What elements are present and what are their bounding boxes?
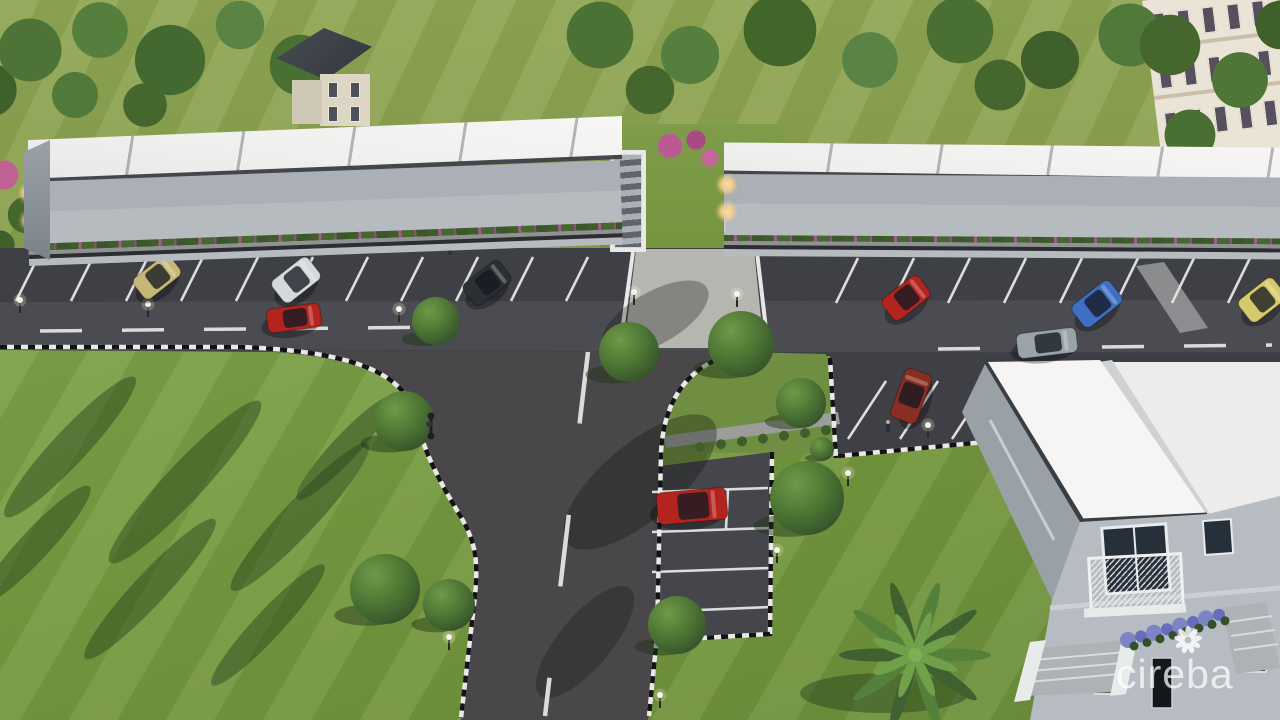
apartment-building-right xyxy=(724,134,1280,284)
car-cabin xyxy=(677,492,710,521)
porch-light xyxy=(724,209,729,214)
lamp-head xyxy=(774,547,780,553)
tree xyxy=(708,311,774,377)
corner-building-small-window xyxy=(1203,519,1233,555)
bush xyxy=(758,434,768,444)
cyclist xyxy=(426,421,432,427)
tree xyxy=(810,437,834,461)
lamp-head xyxy=(631,289,637,295)
corner-building xyxy=(962,356,1280,720)
tree xyxy=(648,596,706,654)
lamp-head xyxy=(845,470,851,476)
car-cabin xyxy=(282,307,308,328)
pink-flowering-tree xyxy=(646,124,726,176)
tree xyxy=(599,322,659,382)
green-shrub xyxy=(1130,642,1139,651)
apartment-building-left xyxy=(28,110,622,270)
bush xyxy=(695,442,705,452)
bicycle-wheel xyxy=(428,413,435,420)
bush xyxy=(779,431,789,441)
apartment-facade xyxy=(724,174,1280,259)
palm-tree xyxy=(800,581,991,720)
rendering-canvas: cireba xyxy=(0,0,1280,720)
corner-building-door xyxy=(1152,658,1172,708)
tree xyxy=(412,297,460,345)
lamp-head xyxy=(17,297,23,303)
palm-crown xyxy=(908,648,922,662)
green-shrub xyxy=(1221,616,1230,625)
tree xyxy=(423,579,475,631)
green-shrub xyxy=(1156,634,1165,643)
green-shrub xyxy=(1182,627,1191,636)
lamp-head xyxy=(925,422,931,428)
tree xyxy=(770,461,844,535)
bush xyxy=(821,425,831,435)
green-shrub xyxy=(1208,620,1217,629)
bush xyxy=(737,436,747,446)
bush xyxy=(716,439,726,449)
person xyxy=(886,424,890,433)
balcony-railing xyxy=(1089,554,1184,613)
porch-light xyxy=(724,182,729,187)
tree xyxy=(350,554,420,624)
lamp-head xyxy=(446,634,452,640)
lamp-head xyxy=(734,291,740,297)
bicycle-wheel xyxy=(428,433,435,440)
lamp-head xyxy=(396,306,402,312)
gable-end-wall xyxy=(24,140,50,260)
lamp-head xyxy=(657,692,663,698)
car-cabin xyxy=(1034,332,1063,354)
tree xyxy=(776,378,826,428)
palm-tree xyxy=(800,581,991,720)
tree xyxy=(374,391,434,451)
tree-shadow xyxy=(202,555,334,694)
bush xyxy=(800,428,810,438)
site-plan-layer xyxy=(0,0,1280,720)
person-head xyxy=(886,420,890,424)
